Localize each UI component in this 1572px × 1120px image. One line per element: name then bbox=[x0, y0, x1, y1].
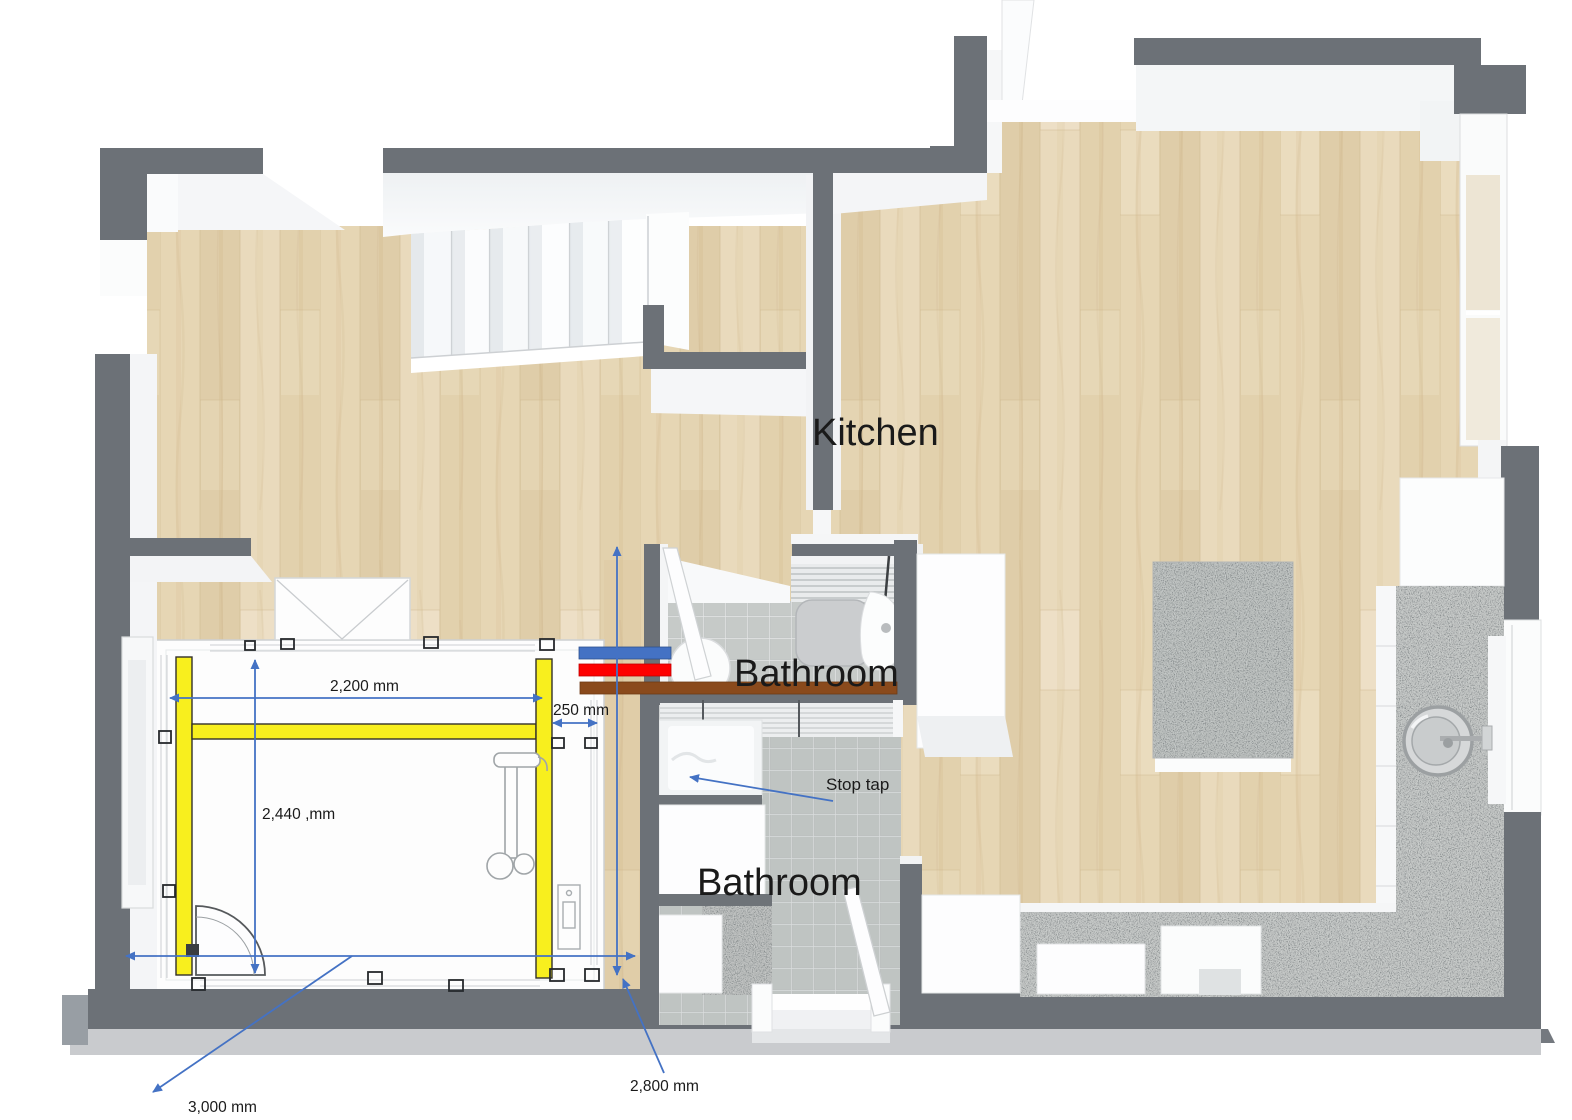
svg-text:2,200 mm: 2,200 mm bbox=[330, 678, 399, 695]
svg-text:Bathroom: Bathroom bbox=[734, 653, 899, 695]
svg-text:250 mm: 250 mm bbox=[553, 702, 609, 719]
svg-text:3,000 mm: 3,000 mm bbox=[188, 1099, 257, 1116]
svg-text:Bathroom: Bathroom bbox=[697, 862, 862, 904]
svg-text:Stop tap: Stop tap bbox=[826, 775, 889, 794]
svg-text:2,440 ,mm: 2,440 ,mm bbox=[262, 806, 335, 823]
svg-text:2,800 mm: 2,800 mm bbox=[630, 1078, 699, 1095]
svg-text:Kitchen: Kitchen bbox=[812, 412, 939, 454]
